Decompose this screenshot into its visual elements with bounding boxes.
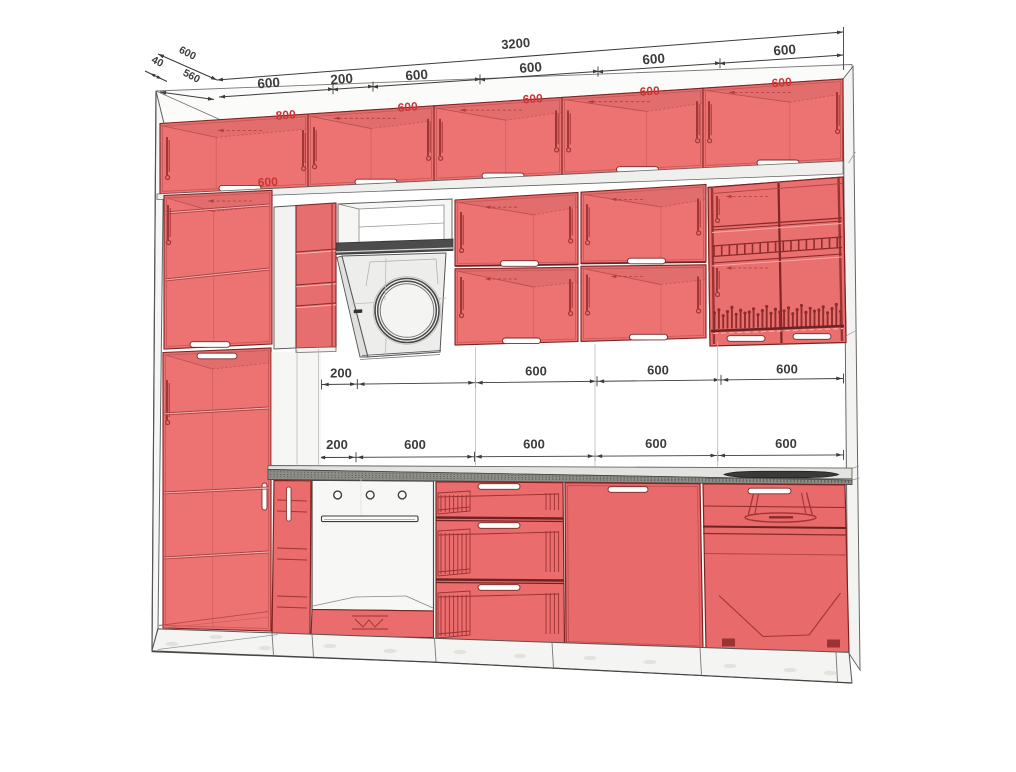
svg-text:600: 600 (775, 436, 797, 451)
svg-text:600: 600 (257, 75, 281, 92)
svg-text:600: 600 (404, 437, 426, 452)
svg-text:600: 600 (257, 174, 278, 189)
svg-text:600: 600 (405, 67, 429, 84)
svg-text:600: 600 (647, 363, 669, 378)
svg-text:600: 600 (773, 42, 797, 59)
svg-text:600: 600 (519, 59, 543, 76)
svg-text:600: 600 (523, 437, 545, 452)
svg-text:600: 600 (645, 436, 667, 451)
svg-text:200: 200 (330, 366, 352, 381)
svg-text:200: 200 (326, 437, 348, 452)
svg-text:600: 600 (642, 51, 666, 68)
svg-text:600: 600 (776, 362, 798, 377)
svg-text:800: 800 (275, 107, 296, 122)
svg-text:200: 200 (330, 71, 354, 88)
svg-text:600: 600 (522, 91, 543, 106)
svg-text:600: 600 (771, 75, 792, 90)
svg-text:3200: 3200 (501, 35, 531, 52)
svg-text:600: 600 (639, 84, 660, 99)
svg-text:600: 600 (397, 99, 418, 114)
svg-text:600: 600 (525, 364, 547, 379)
